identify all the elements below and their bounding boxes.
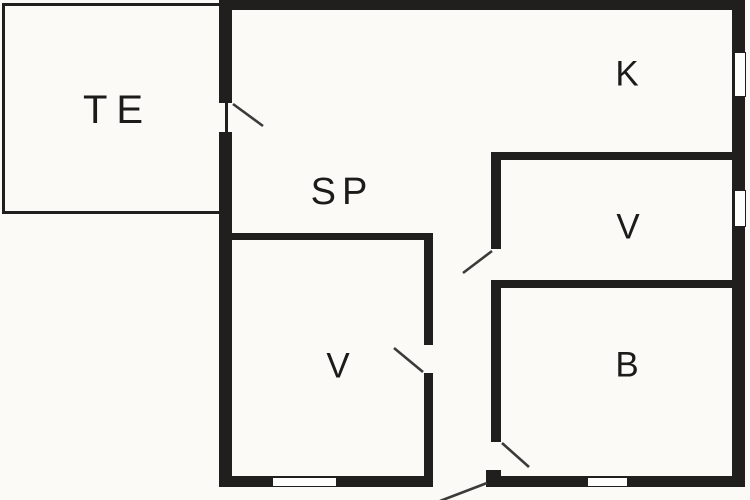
wall-vright-left xyxy=(491,152,501,249)
wall-vbottom-right-lower xyxy=(424,373,433,487)
wall-exterior-left-upper xyxy=(219,0,232,103)
door-swing-vbottom xyxy=(394,348,423,372)
wall-exterior-top xyxy=(219,0,744,10)
room-label-te: TE xyxy=(74,90,152,130)
room-label-vright: V xyxy=(616,210,639,245)
wall-b-left-stub xyxy=(486,470,501,487)
door-swing-terrace xyxy=(233,104,263,126)
wall-vbottom-right-upper xyxy=(424,233,433,345)
wall-vright-b-divider xyxy=(491,280,732,288)
window-b xyxy=(587,477,628,487)
wall-b-left-upper xyxy=(491,280,501,442)
window-vbottom xyxy=(272,477,337,487)
floor-plan: TE K SP V V B xyxy=(0,0,750,500)
door-swing-vright xyxy=(463,251,492,273)
room-label-sp: SP xyxy=(305,173,374,211)
door-swing-b xyxy=(502,443,529,467)
room-label-b: B xyxy=(615,348,638,383)
room-label-vbottom: V xyxy=(326,349,349,384)
door-swing-entrance xyxy=(440,483,487,500)
wall-k-vright-divider xyxy=(491,152,732,160)
wall-exterior-left-lower xyxy=(219,132,232,487)
room-label-k: K xyxy=(615,57,638,92)
window-kitchen xyxy=(734,52,746,97)
window-vright xyxy=(734,190,746,227)
wall-vbottom-top xyxy=(231,233,433,240)
